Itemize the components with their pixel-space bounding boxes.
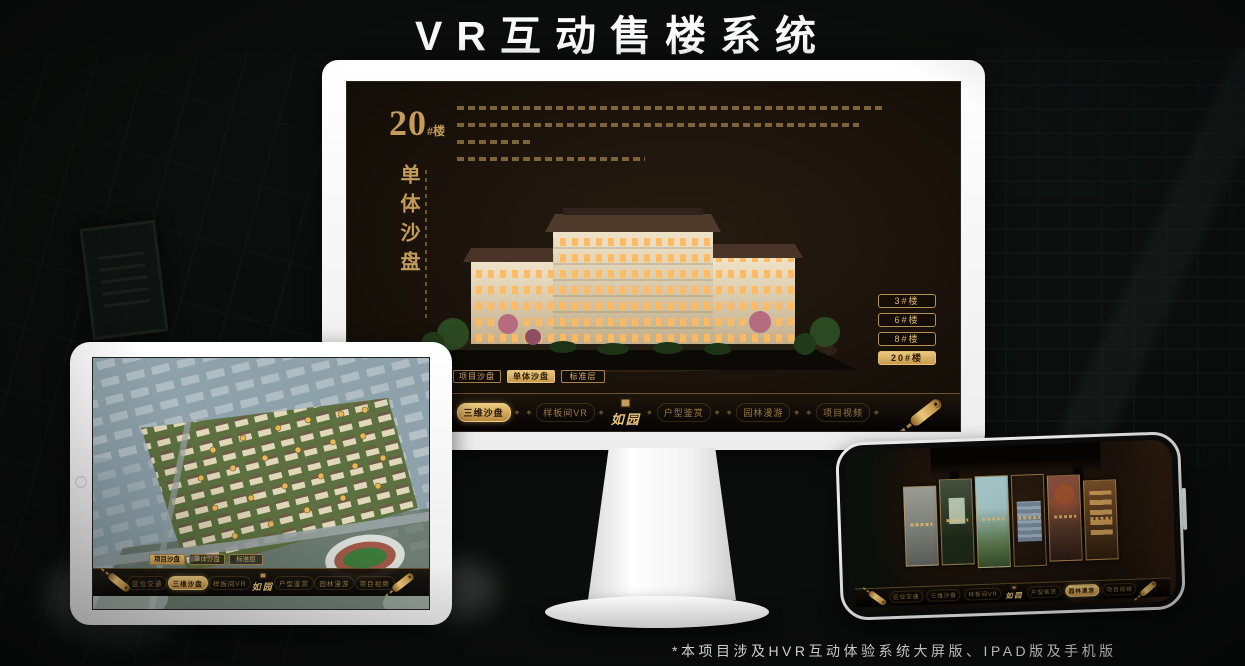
nav-item-3d-sandbox[interactable]: ◆三维沙盘◆ xyxy=(447,403,520,422)
gallery-panel[interactable] xyxy=(1082,479,1118,560)
building-number-badge: 20#楼 xyxy=(389,102,445,144)
page-title: VR互动售楼系统 xyxy=(0,2,1245,62)
brand-logo-text: 如园 xyxy=(611,409,641,428)
nav-item-showroom-vr[interactable]: 样板间VR xyxy=(208,576,252,590)
floor-button-8[interactable]: 8#楼 xyxy=(878,332,936,346)
nav-item-label: 项目视频 xyxy=(1102,583,1136,596)
tab-project-sandbox[interactable]: 项目沙盘 xyxy=(149,554,185,565)
nav-item-showroom-vr[interactable]: ◆样板间VR◆ xyxy=(527,403,605,422)
nav-item-label: 区位交通 xyxy=(889,590,923,603)
tab-standard-floor[interactable]: 标准层 xyxy=(229,554,263,565)
phone-side-button[interactable] xyxy=(1182,488,1187,530)
diamond-ornament-icon: ◆ xyxy=(599,409,605,416)
nav-item-label: 园林漫游 xyxy=(1065,584,1099,597)
floor-button-6[interactable]: 6#楼 xyxy=(878,313,936,327)
nav-item-garden-roam[interactable]: 园林漫游 xyxy=(1065,584,1099,597)
gallery-panel[interactable] xyxy=(1046,475,1082,562)
nav-item-garden-roam[interactable]: ◆园林漫游◆ xyxy=(727,403,800,422)
brand-logo[interactable]: 如园 xyxy=(252,572,274,593)
tab-project-sandbox[interactable]: 项目沙盘 xyxy=(453,370,501,383)
tablet-bottom-nav: 区位交通 三维沙盘 样板间VR 如园 户型鉴赏 园林漫游 项目视频 xyxy=(93,568,429,596)
phone-screen: 区位交通 三维沙盘 样板间VR 如园 户型鉴赏 园林漫游 项目视频 xyxy=(844,439,1176,612)
nav-item-3d-sandbox[interactable]: 三维沙盘 xyxy=(168,576,208,590)
home-button[interactable] xyxy=(75,476,87,488)
nav-item-project-video[interactable]: 项目视频 xyxy=(355,576,395,590)
nav-item-label: 园林漫游 xyxy=(314,576,354,590)
nav-item-label: 三维沙盘 xyxy=(168,576,208,590)
building-3d-render[interactable] xyxy=(413,154,861,386)
gallery-panel[interactable] xyxy=(1010,474,1046,567)
nav-item-unit-plans[interactable]: 户型鉴赏 xyxy=(1027,585,1061,598)
tab-single-sandbox[interactable]: 单体沙盘 xyxy=(189,554,225,565)
tablet-device: 项目沙盘 单体沙盘 标准层 区位交通 三维沙盘 样板间VR 如园 户型鉴赏 园林… xyxy=(70,342,452,625)
diamond-ornament-icon: ◆ xyxy=(715,409,721,416)
nav-item-label: 样板间VR xyxy=(208,576,252,590)
sandbox-subtabs: 项目沙盘 单体沙盘 标准层 xyxy=(453,370,605,383)
brand-logo[interactable]: 如园 xyxy=(611,398,641,428)
nav-item-label: 区位交通 xyxy=(127,576,167,590)
seal-icon xyxy=(259,572,267,579)
promo-poster: VR互动售楼系统 20#楼 单体沙盘 xyxy=(0,0,1245,666)
brand-logo[interactable]: 如园 xyxy=(1005,585,1024,602)
nav-item-unit-plans[interactable]: ◆户型鉴赏◆ xyxy=(647,403,720,422)
gallery-panel[interactable] xyxy=(974,475,1010,568)
diamond-ornament-icon: ◆ xyxy=(806,409,812,416)
diamond-ornament-icon: ◆ xyxy=(874,409,880,416)
diamond-ornament-icon: ◆ xyxy=(647,409,653,416)
monitor-stand xyxy=(588,448,736,600)
nav-item-label: 项目视频 xyxy=(816,403,870,422)
footnote-text: *本项目涉及HVR互动体验系统大屏版、IPAD版及手机版 xyxy=(672,641,1117,661)
diamond-ornament-icon: ◆ xyxy=(727,409,733,416)
nav-item-label: 三维沙盘 xyxy=(457,403,511,422)
brand-logo-text: 如园 xyxy=(252,580,274,593)
pergola-silhouette xyxy=(930,442,1101,478)
nav-item-location[interactable]: 区位交通 xyxy=(889,590,923,603)
nav-item-project-video[interactable]: 项目视频 xyxy=(1102,583,1136,596)
scroll-handle-icon[interactable] xyxy=(908,397,943,428)
seal-icon xyxy=(620,398,631,408)
diamond-ornament-icon: ◆ xyxy=(515,409,521,416)
background-plaque xyxy=(79,220,168,340)
nav-item-label: 户型鉴赏 xyxy=(657,403,711,422)
nav-item-showroom-vr[interactable]: 样板间VR xyxy=(964,587,1002,600)
floor-button-3[interactable]: 3#楼 xyxy=(878,294,936,308)
scroll-handle-icon[interactable] xyxy=(868,590,888,607)
monitor-base xyxy=(545,596,769,628)
nav-item-label: 户型鉴赏 xyxy=(1027,585,1061,598)
scroll-handle-icon[interactable] xyxy=(1139,580,1158,597)
tablet-sandbox-subtabs: 项目沙盘 单体沙盘 标准层 xyxy=(149,554,263,565)
nav-item-location[interactable]: 区位交通 xyxy=(127,576,167,590)
floor-button-20[interactable]: 20#楼 xyxy=(878,351,936,365)
nav-item-3d-sandbox[interactable]: 三维沙盘 xyxy=(927,589,961,602)
nav-item-unit-plans[interactable]: 户型鉴赏 xyxy=(274,576,314,590)
nav-item-label: 项目视频 xyxy=(355,576,395,590)
nav-item-garden-roam[interactable]: 园林漫游 xyxy=(314,576,354,590)
gallery-panels xyxy=(902,473,1118,570)
tab-standard-floor[interactable]: 标准层 xyxy=(561,370,605,383)
diamond-ornament-icon: ◆ xyxy=(527,409,533,416)
brand-logo-text: 如园 xyxy=(1005,591,1023,602)
tab-single-sandbox[interactable]: 单体沙盘 xyxy=(507,370,555,383)
diamond-ornament-icon: ◆ xyxy=(794,409,800,416)
nav-item-label: 园林漫游 xyxy=(736,403,790,422)
building-number-suffix: #楼 xyxy=(427,124,445,138)
tablet-screen: 项目沙盘 单体沙盘 标准层 区位交通 三维沙盘 样板间VR 如园 户型鉴赏 园林… xyxy=(92,357,430,610)
floor-button-group: 3#楼 6#楼 8#楼 20#楼 xyxy=(878,294,936,370)
gallery-panel[interactable] xyxy=(903,486,939,567)
seal-icon xyxy=(1011,585,1017,590)
nav-item-label: 户型鉴赏 xyxy=(274,576,314,590)
nav-item-label: 样板间VR xyxy=(964,587,1002,600)
gallery-panel[interactable] xyxy=(938,478,974,565)
nav-item-label: 样板间VR xyxy=(536,403,595,422)
nav-item-project-video[interactable]: ◆项目视频◆ xyxy=(806,403,879,422)
phone-device: 区位交通 三维沙盘 样板间VR 如园 户型鉴赏 园林漫游 项目视频 xyxy=(835,431,1186,621)
nav-item-label: 三维沙盘 xyxy=(927,589,961,602)
building-number: 20 xyxy=(389,103,427,143)
background-aerial-texture xyxy=(975,48,1245,468)
